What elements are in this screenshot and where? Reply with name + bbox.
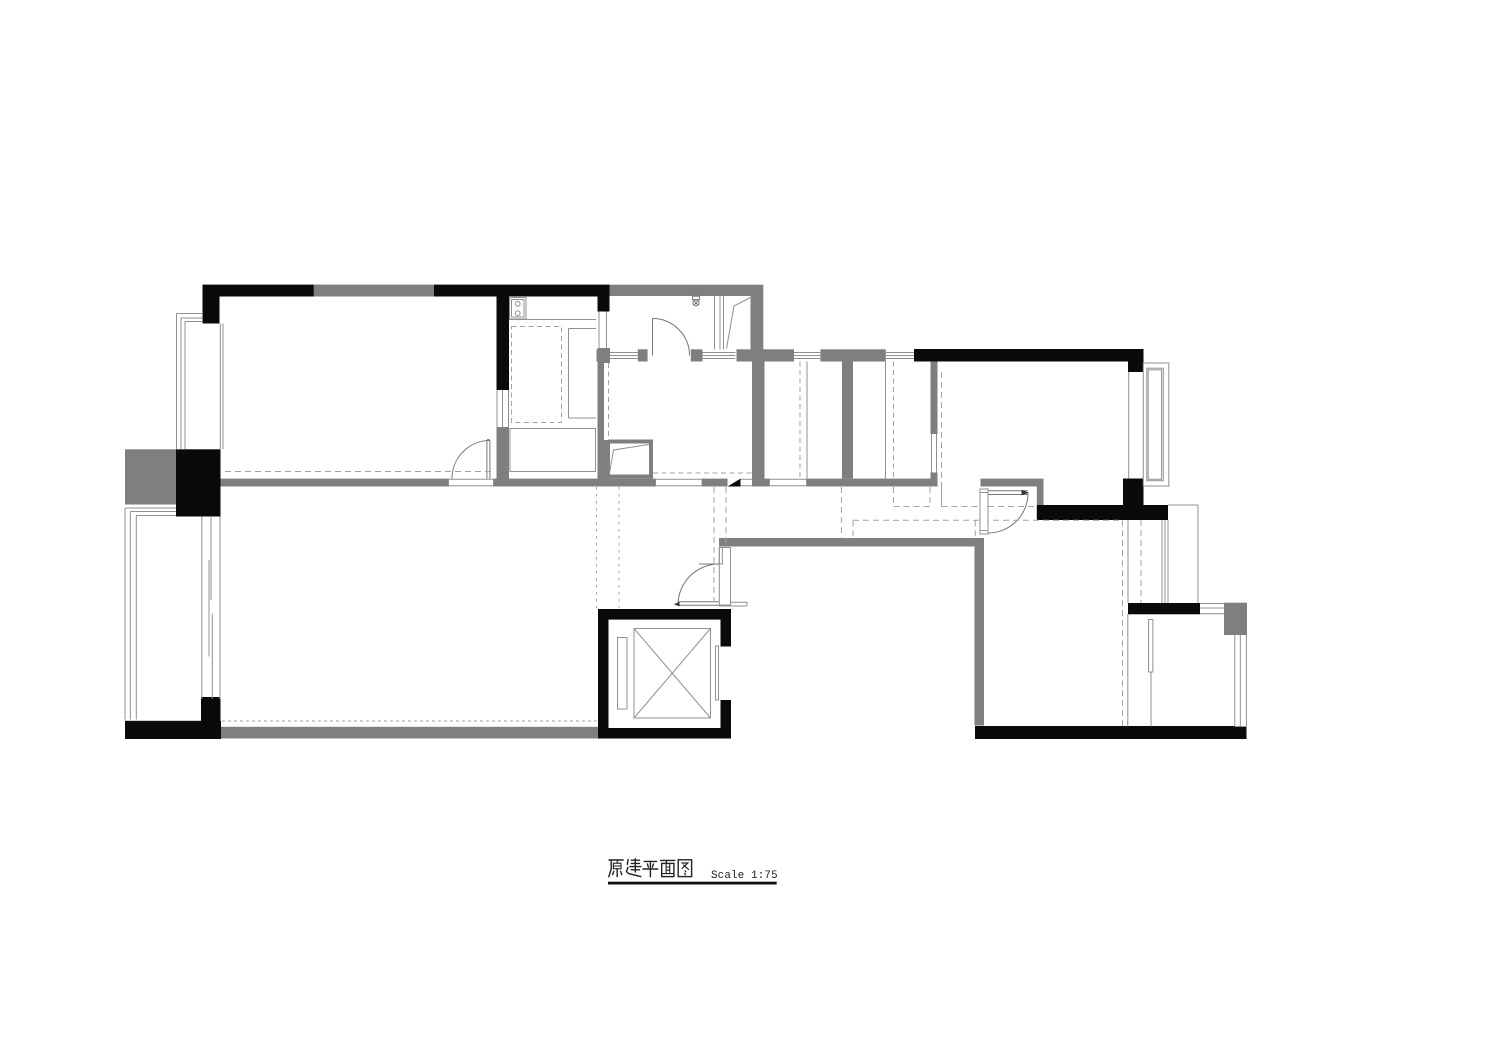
svg-text:Scale 1:75: Scale 1:75 [711, 870, 778, 882]
